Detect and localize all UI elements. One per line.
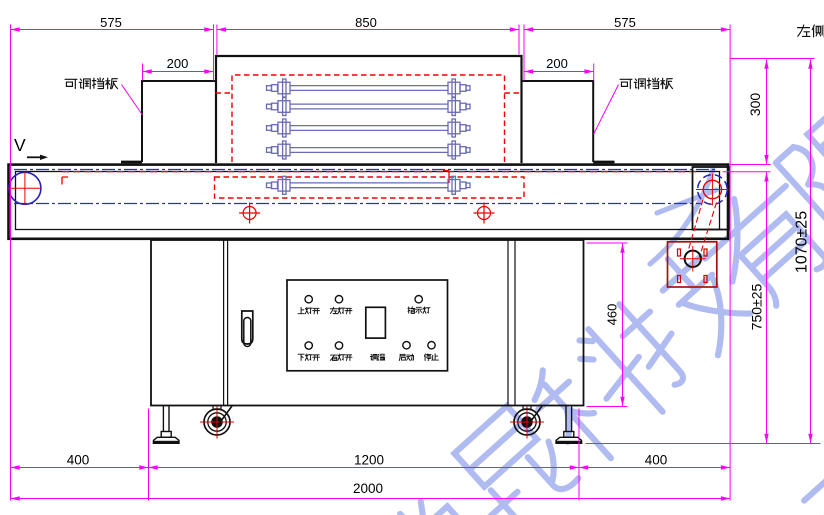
svg-text:1200: 1200 [354,453,384,468]
svg-text:575: 575 [100,15,122,30]
svg-text:400: 400 [645,453,668,468]
svg-text:200: 200 [546,56,568,71]
svg-text:200: 200 [167,56,189,71]
svg-text:2000: 2000 [353,481,383,496]
svg-text:V: V [14,135,26,155]
svg-text:575: 575 [614,15,636,30]
svg-text:1070±25: 1070±25 [794,211,811,273]
svg-text:400: 400 [67,453,90,468]
svg-text:300: 300 [747,93,763,117]
svg-text:460: 460 [605,304,620,326]
svg-text:850: 850 [355,15,377,30]
svg-text:750±25: 750±25 [749,283,765,330]
